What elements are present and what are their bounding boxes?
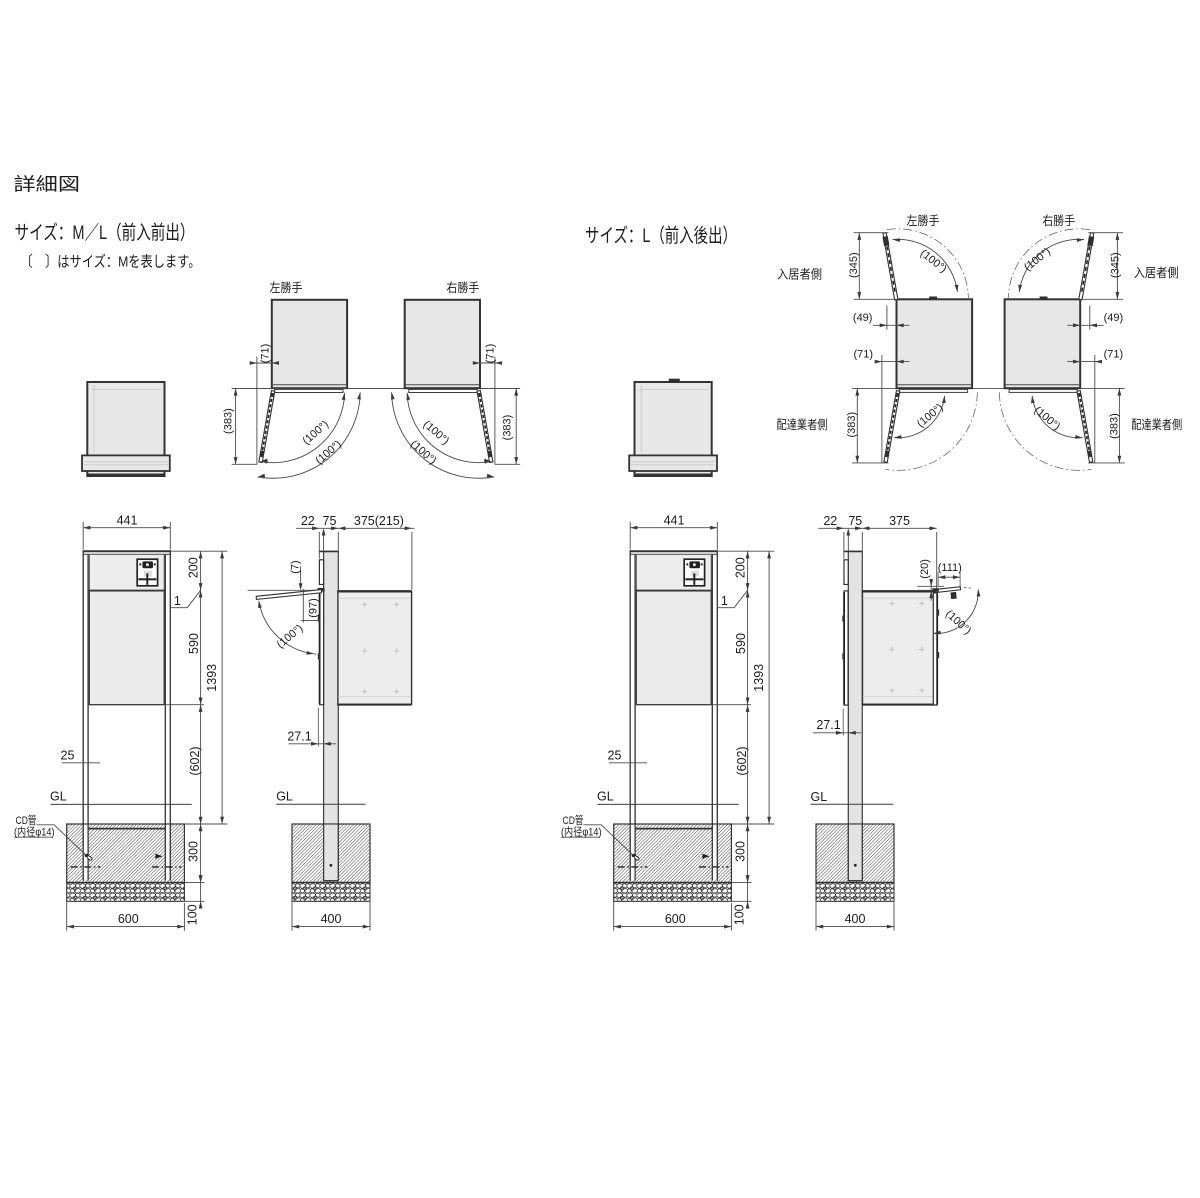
svg-text:入居者側: 入居者側: [1134, 266, 1179, 280]
svg-text:(49): (49): [1104, 312, 1124, 324]
svg-text:詳細図: 詳細図: [14, 175, 81, 195]
svg-text:(内径φ14): (内径φ14): [14, 824, 55, 838]
svg-text:入居者側: 入居者側: [777, 268, 822, 282]
svg-text:200: 200: [186, 557, 200, 578]
svg-text:左勝手: 左勝手: [907, 213, 940, 228]
svg-text:1393: 1393: [205, 664, 219, 692]
svg-text:GL: GL: [276, 789, 293, 803]
svg-text:(383): (383): [502, 415, 514, 441]
svg-text:〔 〕はサイズ：Mを表します。: 〔 〕はサイズ：Mを表します。: [21, 254, 201, 271]
svg-text:(97): (97): [308, 598, 320, 618]
svg-text:(345): (345): [1109, 252, 1121, 278]
svg-text:27.1: 27.1: [287, 729, 311, 743]
svg-text:25: 25: [61, 749, 75, 763]
svg-text:600: 600: [118, 912, 139, 926]
svg-text:(71): (71): [260, 344, 272, 364]
svg-text:(49): (49): [853, 312, 873, 324]
svg-text:左勝手: 左勝手: [270, 280, 303, 295]
svg-text:(20): (20): [919, 559, 931, 579]
svg-text:(345): (345): [848, 252, 860, 278]
svg-text:375(215): 375(215): [354, 514, 404, 528]
svg-text:75: 75: [323, 514, 337, 528]
svg-text:GL: GL: [811, 790, 828, 804]
svg-text:サイズ：M／L（前入前出）: サイズ：M／L（前入前出）: [15, 222, 195, 244]
svg-text:(71): (71): [854, 348, 874, 360]
svg-text:(111): (111): [938, 562, 962, 574]
svg-text:GL: GL: [50, 790, 67, 804]
svg-text:22: 22: [823, 514, 837, 528]
svg-text:100: 100: [186, 904, 200, 925]
svg-text:配達業者側: 配達業者側: [1131, 417, 1182, 432]
svg-text:(383): (383): [846, 412, 858, 438]
svg-text:1: 1: [174, 594, 181, 608]
svg-text:(71): (71): [1104, 348, 1124, 360]
svg-text:右勝手: 右勝手: [1042, 213, 1075, 228]
svg-text:(383): (383): [223, 408, 235, 434]
svg-text:590: 590: [187, 633, 201, 654]
svg-text:22: 22: [301, 514, 315, 528]
svg-text:右勝手: 右勝手: [446, 280, 479, 295]
svg-text:300: 300: [187, 841, 201, 862]
svg-text:400: 400: [321, 912, 342, 926]
svg-text:(383): (383): [1108, 413, 1120, 439]
svg-text:(71): (71): [485, 344, 497, 364]
svg-text:CD管: CD管: [16, 813, 37, 827]
svg-text:(7): (7): [290, 560, 302, 573]
svg-text:サイズ：L（前入後出）: サイズ：L（前入後出）: [585, 225, 737, 247]
svg-text:441: 441: [117, 513, 138, 527]
svg-text:75: 75: [848, 514, 862, 528]
svg-text:配達業者側: 配達業者側: [777, 417, 828, 432]
svg-text:27.1: 27.1: [816, 718, 840, 732]
svg-text:400: 400: [845, 912, 866, 926]
svg-text:375: 375: [889, 514, 910, 528]
svg-text:(602): (602): [188, 746, 202, 775]
